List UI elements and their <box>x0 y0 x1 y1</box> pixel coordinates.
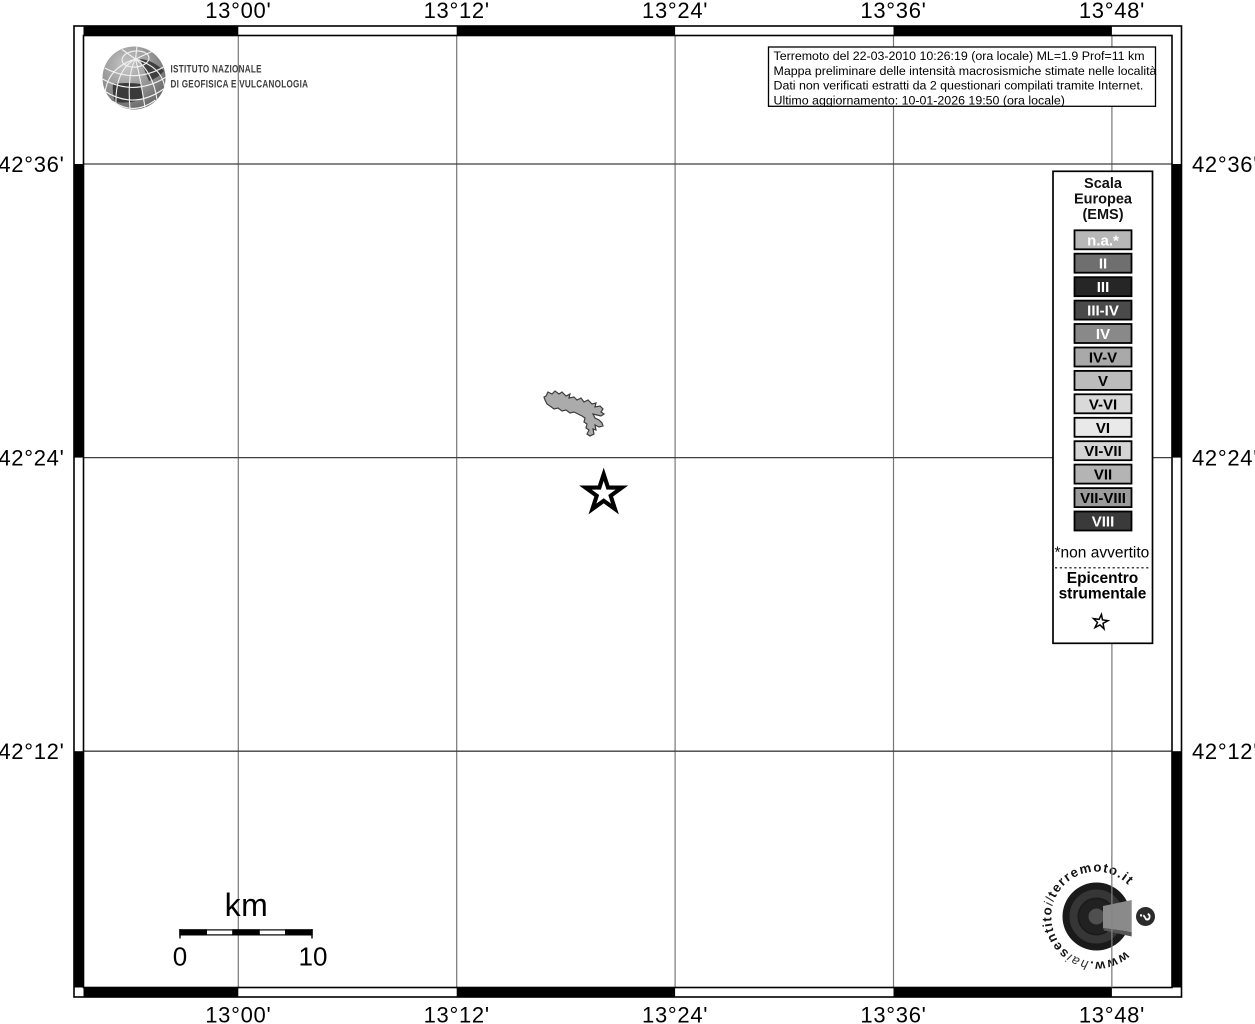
svg-text:strumentale: strumentale <box>1059 586 1147 603</box>
svg-text:42°36': 42°36' <box>0 152 65 177</box>
svg-text:13°48': 13°48' <box>1079 0 1145 23</box>
svg-text:Epicentro: Epicentro <box>1067 570 1138 587</box>
svg-text:13°24': 13°24' <box>642 1003 708 1024</box>
svg-text:VII: VII <box>1094 467 1112 484</box>
svg-text:13°36': 13°36' <box>860 0 926 23</box>
svg-text:II: II <box>1099 256 1107 273</box>
svg-text:km: km <box>225 887 269 923</box>
svg-text:42°36': 42°36' <box>1192 152 1255 177</box>
svg-text:DI GEOFISICA E VULCANOLOGIA: DI GEOFISICA E VULCANOLOGIA <box>171 78 309 91</box>
svg-text:IV: IV <box>1096 326 1110 343</box>
svg-text:VIII: VIII <box>1092 514 1115 531</box>
svg-text:n.a.*: n.a.* <box>1087 232 1119 249</box>
svg-text:V-VI: V-VI <box>1089 396 1117 413</box>
svg-text:VI: VI <box>1096 420 1110 437</box>
svg-text:42°24': 42°24' <box>0 446 65 471</box>
svg-text:13°12': 13°12' <box>424 1003 490 1024</box>
svg-text:III: III <box>1097 279 1110 296</box>
svg-text:42°12': 42°12' <box>1192 739 1255 764</box>
svg-text:13°48': 13°48' <box>1079 1003 1145 1024</box>
svg-text:Europea: Europea <box>1074 192 1133 208</box>
svg-text:13°00': 13°00' <box>205 0 271 23</box>
svg-text:VI-VII: VI-VII <box>1084 443 1122 460</box>
svg-text:13°00': 13°00' <box>205 1003 271 1024</box>
svg-text:ISTITUTO NAZIONALE: ISTITUTO NAZIONALE <box>171 63 262 76</box>
svg-text:VII-VIII: VII-VIII <box>1080 490 1126 507</box>
svg-text:V: V <box>1098 373 1108 390</box>
svg-text:IV-V: IV-V <box>1089 350 1117 367</box>
svg-text:Scala: Scala <box>1084 176 1123 192</box>
svg-text:13°24': 13°24' <box>642 0 708 23</box>
svg-text:Terremoto del 22-03-2010 10:26: Terremoto del 22-03-2010 10:26:19 (ora l… <box>774 49 1145 63</box>
svg-text:(EMS): (EMS) <box>1082 207 1123 223</box>
svg-text:10: 10 <box>299 941 328 971</box>
svg-text:42°12': 42°12' <box>0 739 65 764</box>
svg-text:Dati non verificati estratti d: Dati non verificati estratti da 2 questi… <box>774 79 1144 93</box>
svg-text:Ultimo aggiornamento: 10-01-20: Ultimo aggiornamento: 10-01-2026 19:50 (… <box>774 93 1065 107</box>
svg-text:*non avvertito: *non avvertito <box>1055 544 1150 561</box>
svg-text:III-IV: III-IV <box>1087 303 1119 320</box>
svg-text:42°24': 42°24' <box>1192 446 1255 471</box>
svg-text:0: 0 <box>173 941 187 971</box>
svg-text:13°36': 13°36' <box>860 1003 926 1024</box>
svg-text:Mappa preliminare delle intens: Mappa preliminare delle intensità macros… <box>774 64 1157 78</box>
svg-text:13°12': 13°12' <box>424 0 490 23</box>
